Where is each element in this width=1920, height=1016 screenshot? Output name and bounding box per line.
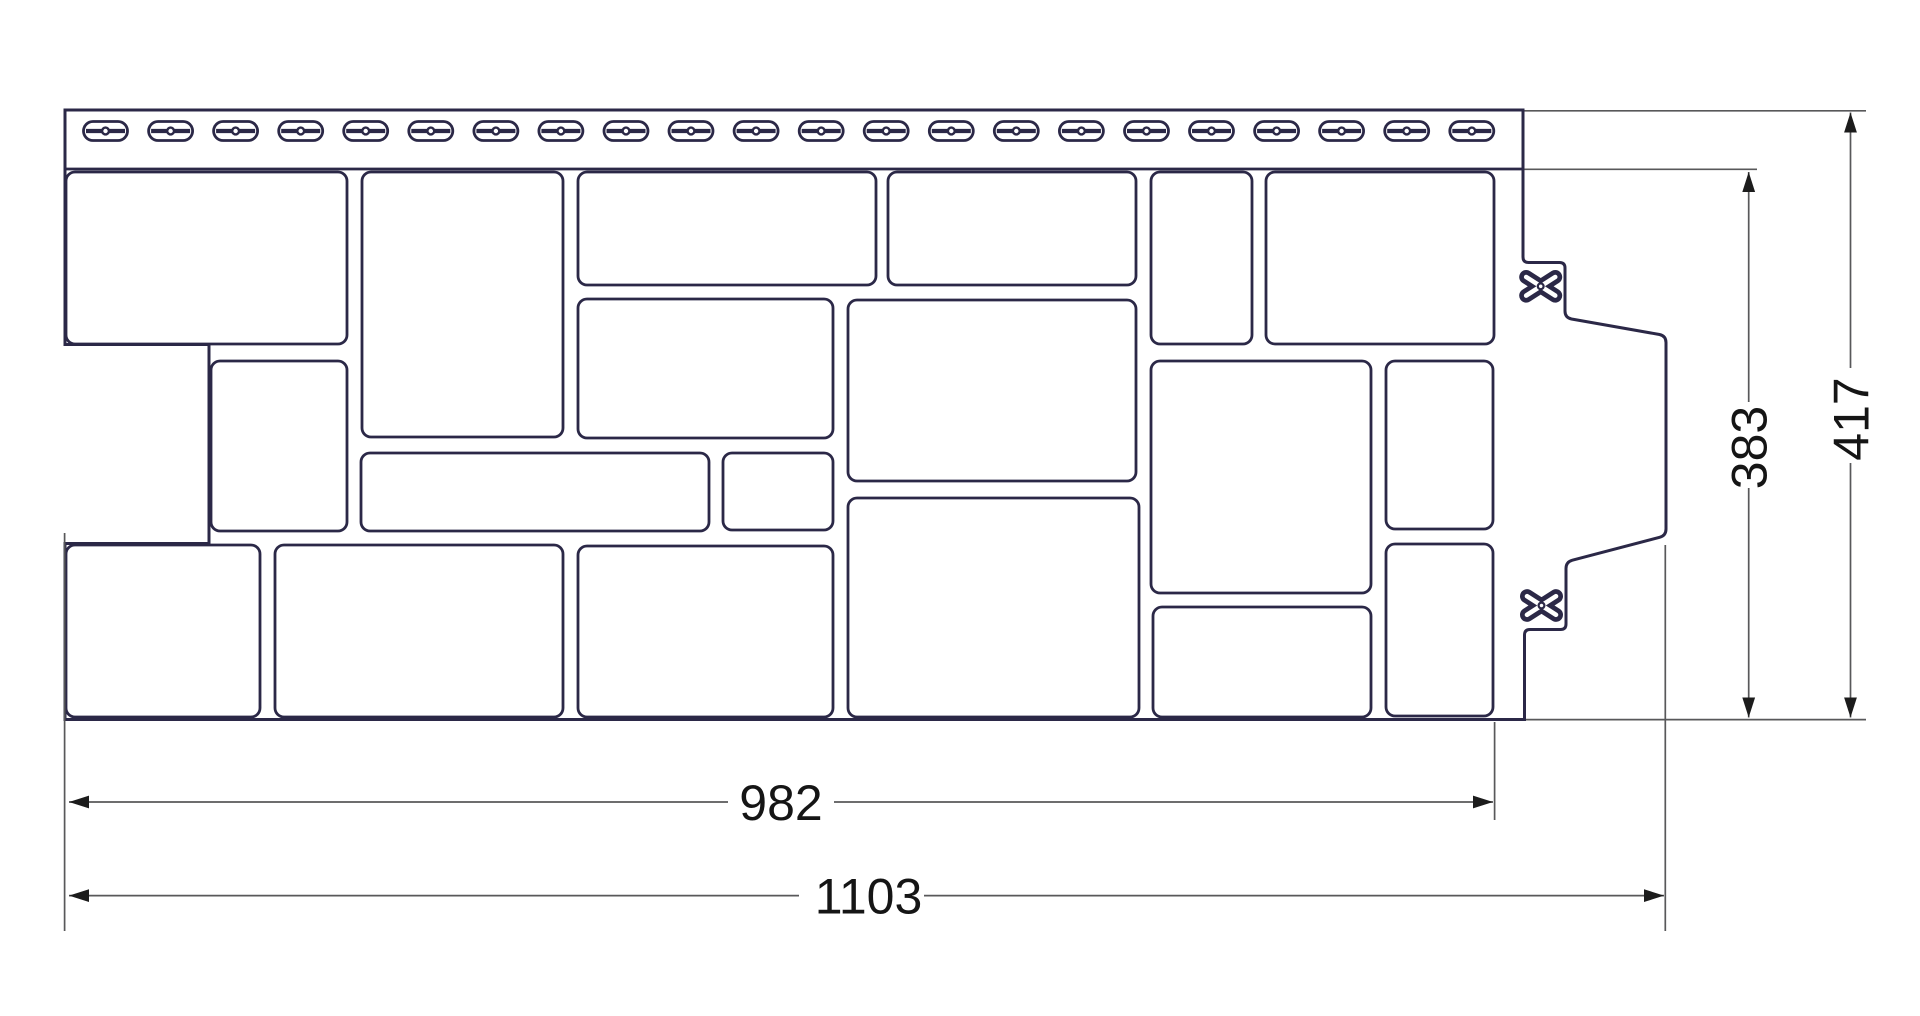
svg-text:383: 383 [1722, 406, 1778, 489]
svg-text:982: 982 [739, 775, 822, 831]
svg-text:417: 417 [1824, 377, 1880, 460]
svg-text:1103: 1103 [815, 869, 923, 925]
